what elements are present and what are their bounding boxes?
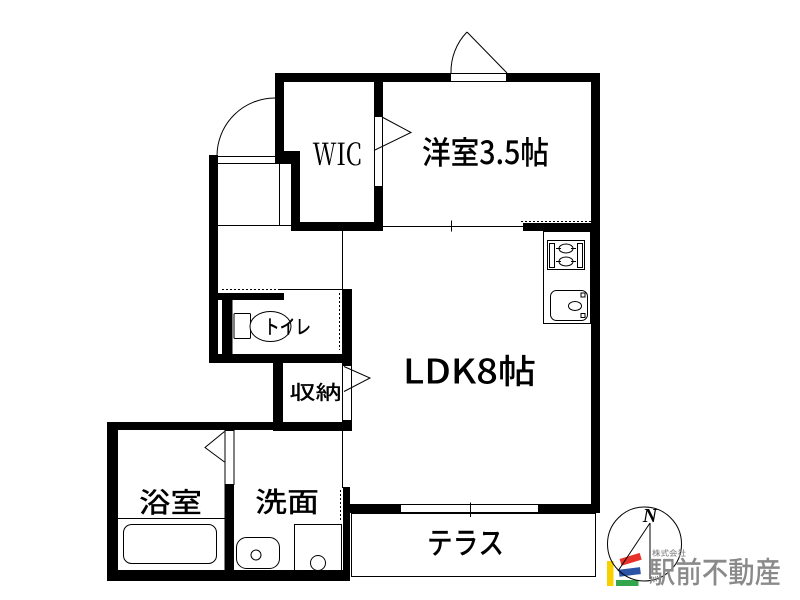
svg-text:N: N	[642, 505, 659, 527]
